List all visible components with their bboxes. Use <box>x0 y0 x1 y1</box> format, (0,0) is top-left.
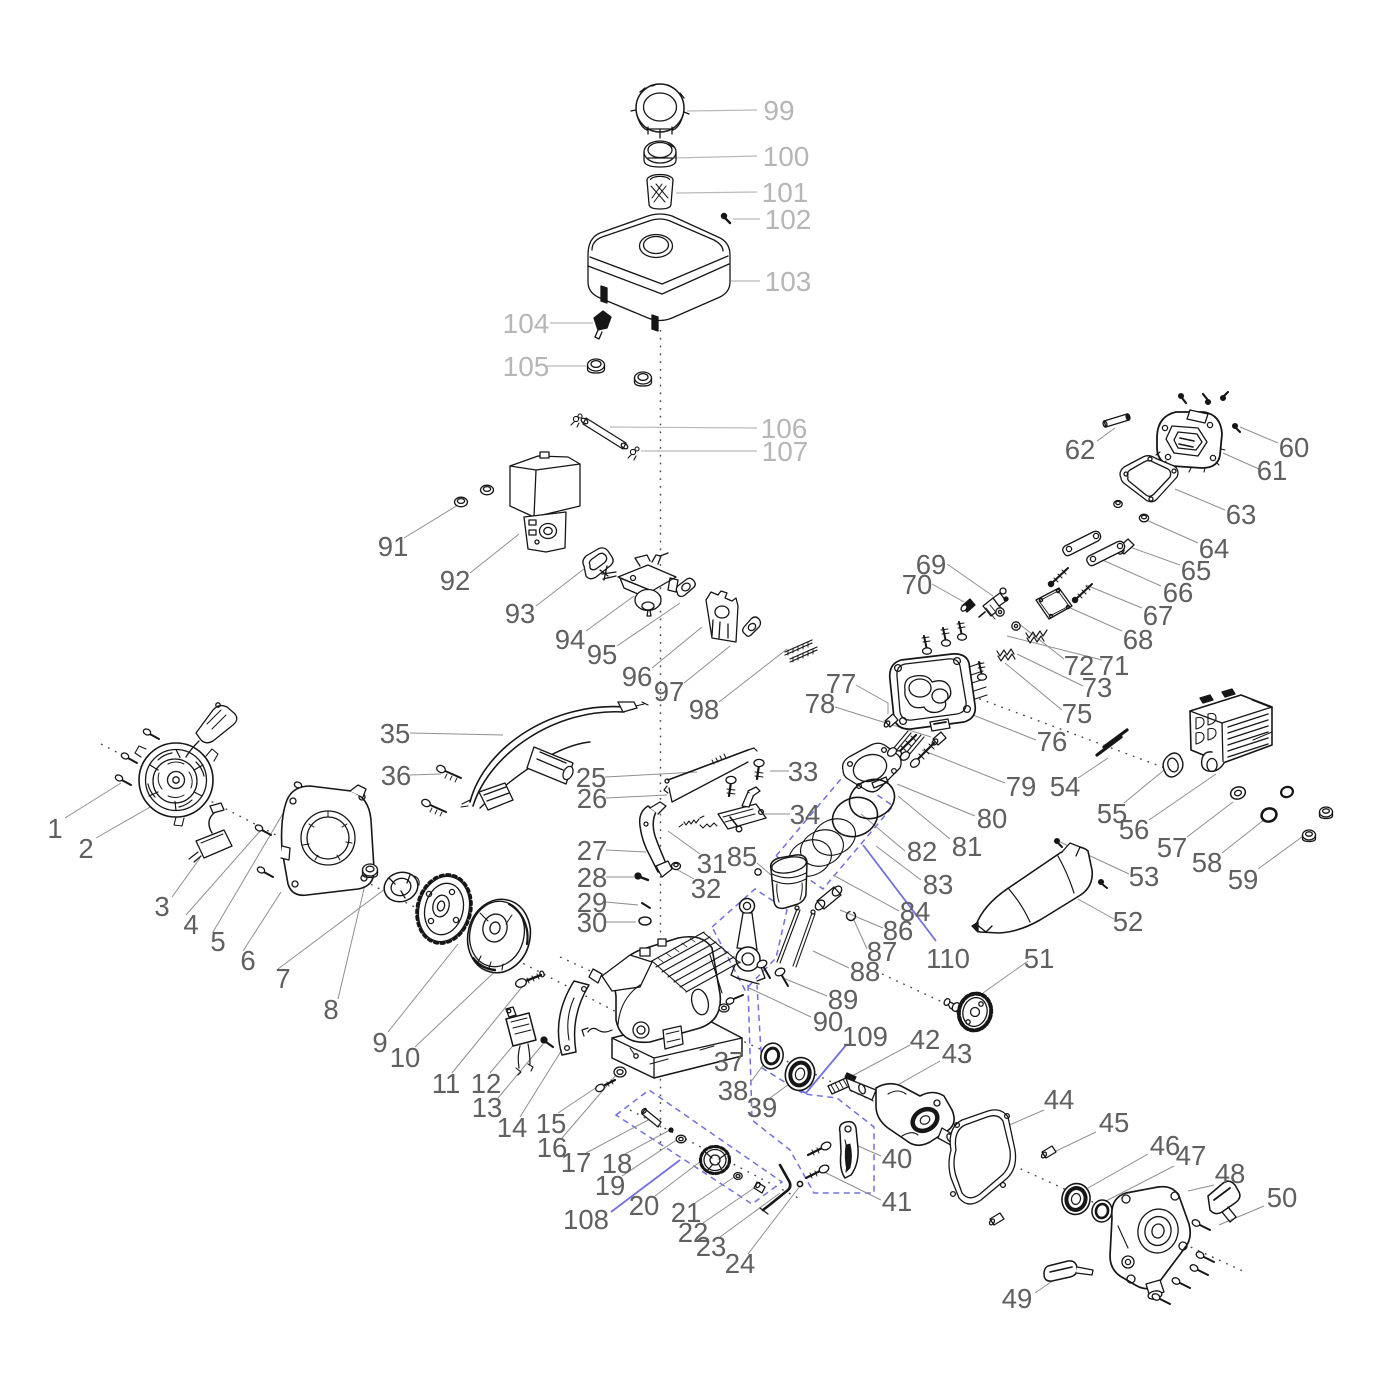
svg-text:32: 32 <box>691 873 722 904</box>
svg-text:20: 20 <box>629 1190 660 1221</box>
svg-text:19: 19 <box>595 1170 626 1201</box>
svg-text:103: 103 <box>765 266 812 297</box>
svg-text:47: 47 <box>1176 1140 1207 1171</box>
svg-text:17: 17 <box>561 1147 592 1178</box>
svg-text:62: 62 <box>1065 434 1096 465</box>
svg-text:107: 107 <box>762 436 809 467</box>
svg-text:6: 6 <box>240 945 255 976</box>
svg-text:104: 104 <box>503 308 550 339</box>
svg-text:39: 39 <box>747 1092 778 1123</box>
svg-text:9: 9 <box>372 1027 387 1058</box>
svg-text:93: 93 <box>505 598 536 629</box>
svg-text:36: 36 <box>381 760 412 791</box>
svg-text:7: 7 <box>275 963 290 994</box>
svg-text:38: 38 <box>718 1075 749 1106</box>
svg-text:3: 3 <box>154 891 169 922</box>
svg-text:88: 88 <box>850 956 881 987</box>
svg-text:59: 59 <box>1228 864 1259 895</box>
svg-text:102: 102 <box>765 204 812 235</box>
svg-text:14: 14 <box>497 1112 528 1143</box>
svg-text:1: 1 <box>47 813 62 844</box>
svg-text:50: 50 <box>1267 1182 1298 1213</box>
svg-text:41: 41 <box>882 1186 913 1217</box>
svg-text:85: 85 <box>727 841 758 872</box>
svg-text:23: 23 <box>696 1231 727 1262</box>
svg-text:61: 61 <box>1257 455 1288 486</box>
svg-text:91: 91 <box>378 531 409 562</box>
svg-text:63: 63 <box>1226 499 1257 530</box>
svg-text:57: 57 <box>1157 832 1188 863</box>
svg-text:49: 49 <box>1002 1283 1033 1314</box>
svg-text:43: 43 <box>942 1038 973 1069</box>
svg-text:80: 80 <box>977 803 1008 834</box>
svg-text:8: 8 <box>323 994 338 1025</box>
svg-text:11: 11 <box>432 1068 461 1099</box>
svg-text:98: 98 <box>689 694 720 725</box>
svg-text:90: 90 <box>813 1006 844 1037</box>
svg-text:53: 53 <box>1129 861 1160 892</box>
svg-text:5: 5 <box>210 926 225 957</box>
svg-text:99: 99 <box>763 95 794 126</box>
svg-text:95: 95 <box>587 639 618 670</box>
svg-text:82: 82 <box>907 836 938 867</box>
svg-text:58: 58 <box>1192 847 1223 878</box>
svg-text:48: 48 <box>1215 1158 1246 1189</box>
svg-text:94: 94 <box>555 624 586 655</box>
svg-text:30: 30 <box>577 907 608 938</box>
svg-text:34: 34 <box>790 799 821 830</box>
svg-text:33: 33 <box>788 756 819 787</box>
svg-text:42: 42 <box>910 1024 941 1055</box>
svg-text:97: 97 <box>654 676 685 707</box>
svg-text:78: 78 <box>805 688 836 719</box>
svg-text:52: 52 <box>1113 906 1144 937</box>
svg-text:4: 4 <box>183 909 198 940</box>
svg-text:105: 105 <box>503 351 550 382</box>
svg-text:76: 76 <box>1037 726 1068 757</box>
svg-text:100: 100 <box>763 141 810 172</box>
svg-text:109: 109 <box>842 1021 888 1052</box>
svg-text:45: 45 <box>1099 1107 1130 1138</box>
svg-text:2: 2 <box>78 833 93 864</box>
svg-text:56: 56 <box>1119 814 1150 845</box>
svg-text:54: 54 <box>1050 771 1081 802</box>
svg-text:37: 37 <box>714 1046 745 1077</box>
svg-text:79: 79 <box>1006 771 1037 802</box>
svg-text:70: 70 <box>902 569 933 600</box>
svg-text:75: 75 <box>1062 698 1093 729</box>
svg-text:110: 110 <box>926 943 970 974</box>
svg-text:108: 108 <box>563 1204 609 1235</box>
svg-text:44: 44 <box>1044 1084 1075 1115</box>
svg-text:96: 96 <box>622 661 653 692</box>
svg-text:35: 35 <box>380 718 411 749</box>
svg-text:10: 10 <box>390 1042 421 1073</box>
svg-text:40: 40 <box>882 1143 913 1174</box>
svg-text:51: 51 <box>1024 943 1055 974</box>
svg-text:92: 92 <box>440 565 471 596</box>
svg-text:24: 24 <box>725 1248 756 1279</box>
svg-text:26: 26 <box>577 783 608 814</box>
svg-text:81: 81 <box>952 831 983 862</box>
